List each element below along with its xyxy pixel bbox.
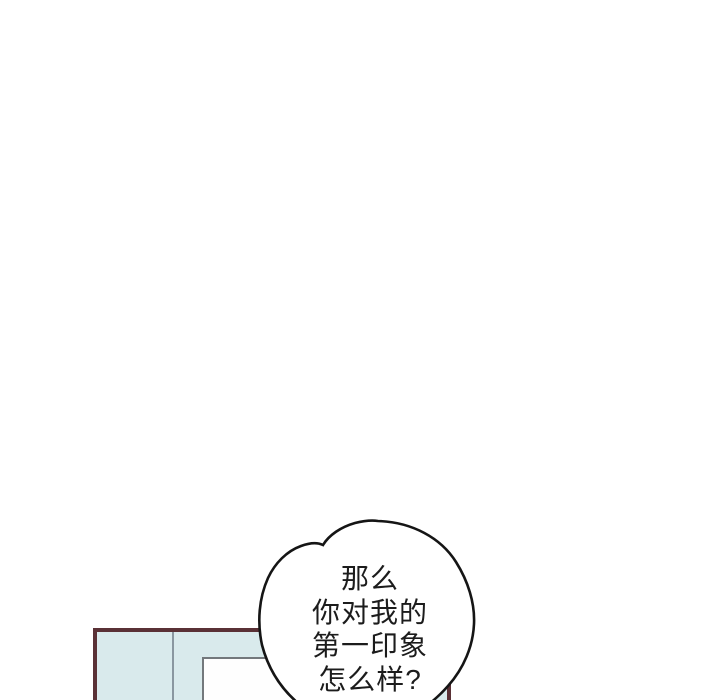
speech-line-4: 怎么样? xyxy=(262,663,478,697)
comic-page: 那么 你对我的 第一印象 怎么样? xyxy=(0,0,720,700)
speech-line-3: 第一印象 xyxy=(262,629,478,663)
speech-line-2: 你对我的 xyxy=(262,596,478,630)
speech-bubble-text: 那么 你对我的 第一印象 怎么样? xyxy=(262,562,478,696)
speech-line-1: 那么 xyxy=(262,562,478,596)
